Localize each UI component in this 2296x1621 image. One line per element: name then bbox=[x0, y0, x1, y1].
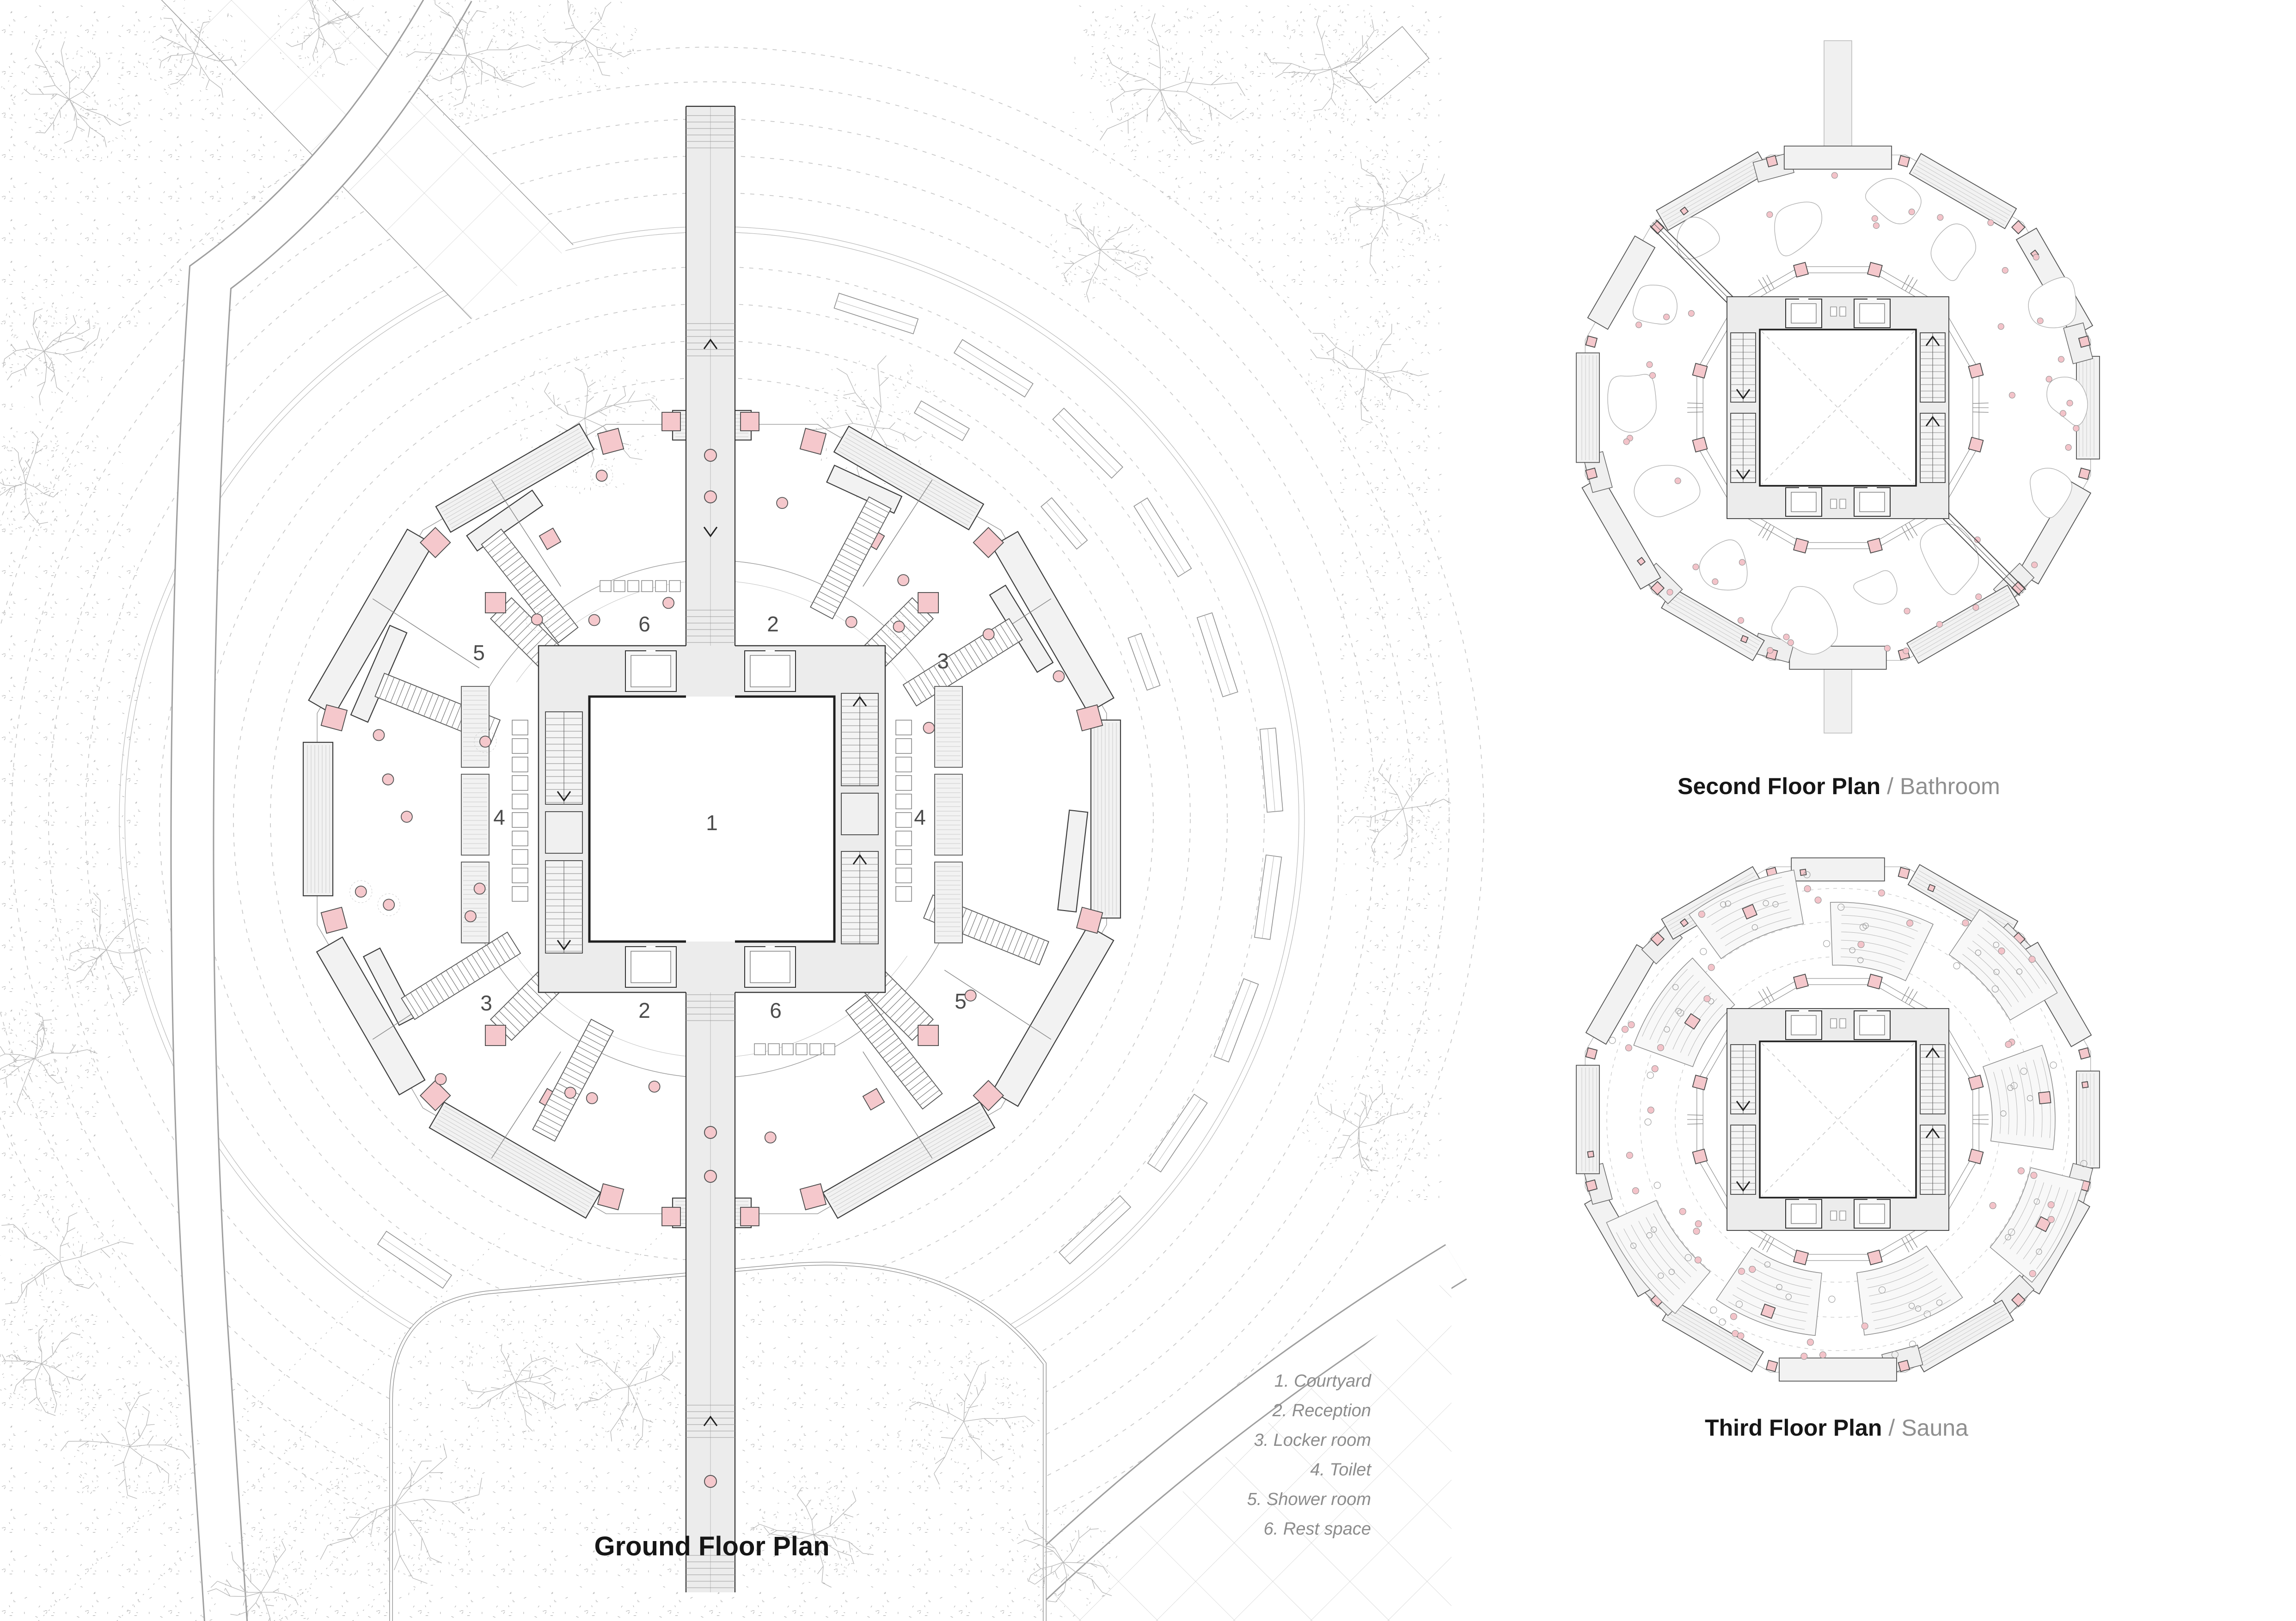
pool-dot bbox=[1667, 589, 1673, 595]
room-number: 3 bbox=[480, 991, 492, 1015]
pool-blob bbox=[1920, 524, 1978, 595]
pool-dot bbox=[1998, 324, 2004, 330]
room-legend: 1. Courtyard2. Reception3. Locker room4.… bbox=[1112, 1366, 1371, 1544]
pink-dot bbox=[1698, 911, 1705, 918]
pool-blob bbox=[1677, 217, 1720, 259]
ground-floor-title: Ground Floor Plan bbox=[594, 1531, 829, 1562]
plaza-bench bbox=[1041, 498, 1087, 549]
toilet-stall bbox=[896, 757, 912, 772]
pink-marker bbox=[1766, 1360, 1777, 1371]
elevator bbox=[625, 947, 676, 987]
toilet-stall bbox=[896, 720, 912, 735]
pink-marker bbox=[800, 1184, 826, 1210]
ring-gate bbox=[1687, 1115, 1703, 1115]
pink-dot bbox=[765, 1132, 776, 1143]
pink-marker bbox=[918, 593, 938, 613]
tree bbox=[1051, 202, 1153, 302]
room-block bbox=[429, 1102, 600, 1218]
seat-dot bbox=[1953, 963, 1960, 969]
room-number: 4 bbox=[914, 805, 926, 829]
pool-dot bbox=[1650, 373, 1656, 379]
elevator bbox=[1786, 299, 1822, 328]
ring-gate bbox=[1687, 403, 1703, 404]
locker-block bbox=[935, 686, 962, 767]
pink-dot bbox=[1695, 1221, 1702, 1227]
toilet-stall bbox=[896, 776, 912, 790]
pink-marker bbox=[918, 1025, 938, 1046]
room-number: 5 bbox=[955, 989, 967, 1013]
stair-flight bbox=[545, 712, 582, 804]
pink-marker bbox=[2082, 1082, 2088, 1088]
pink-dot bbox=[383, 774, 394, 785]
seat-dot bbox=[1647, 1072, 1653, 1078]
corridor-stub bbox=[1824, 668, 1852, 733]
pink-marker bbox=[1586, 1180, 1597, 1191]
seat-dot bbox=[1654, 1182, 1660, 1188]
pool-blob bbox=[1775, 202, 1822, 256]
plaza-bench bbox=[1197, 613, 1238, 697]
pink-dot bbox=[1962, 920, 1969, 926]
pool-dot bbox=[1788, 640, 1794, 646]
pink-marker bbox=[1766, 156, 1777, 167]
pink-marker bbox=[1867, 538, 1882, 553]
pool-blob bbox=[1633, 285, 1678, 324]
toilet-stall bbox=[896, 831, 912, 846]
pink-dot bbox=[1878, 890, 1885, 896]
plaza-bench bbox=[954, 340, 1033, 397]
ring-gate bbox=[1973, 1115, 1989, 1115]
wc-fixture bbox=[1831, 499, 1837, 508]
pool-dot bbox=[2037, 318, 2043, 324]
third-floor-title: Third Floor Plan/Sauna bbox=[1705, 1414, 1968, 1441]
toilet-stall bbox=[512, 813, 528, 827]
pink-marker bbox=[539, 528, 561, 550]
pink-marker bbox=[800, 428, 826, 454]
pink-dot bbox=[2005, 1041, 2012, 1048]
toilet-stall bbox=[512, 831, 528, 846]
pink-marker bbox=[741, 1207, 759, 1226]
pink-dot bbox=[1820, 1352, 1826, 1358]
stair-flight bbox=[841, 693, 878, 786]
pool-dot bbox=[1937, 214, 1943, 220]
ring-block bbox=[1910, 153, 2016, 228]
pink-marker bbox=[1867, 1250, 1882, 1265]
stair-flight bbox=[1731, 1125, 1756, 1194]
pink-dot bbox=[704, 449, 716, 461]
stair-flight bbox=[1920, 1045, 1945, 1114]
wc-fixture bbox=[1840, 307, 1846, 316]
counter-tile bbox=[642, 581, 653, 592]
toilet-stall bbox=[896, 887, 912, 901]
seat-dot bbox=[1829, 1296, 1835, 1303]
pink-dot bbox=[1807, 1339, 1814, 1346]
pink-dot bbox=[1626, 1152, 1633, 1159]
pool-dot bbox=[2009, 392, 2015, 398]
elevator bbox=[1786, 1199, 1822, 1228]
room-number: 4 bbox=[493, 805, 505, 829]
pool-blob bbox=[1608, 374, 1656, 432]
pink-marker bbox=[1794, 538, 1808, 553]
small-core bbox=[1727, 297, 1949, 519]
elevator bbox=[625, 651, 676, 691]
counter-tile bbox=[824, 1044, 835, 1055]
toilet-stall bbox=[896, 868, 912, 883]
legend-item: 6. Rest space bbox=[1112, 1514, 1371, 1544]
stair-flight bbox=[1920, 413, 1945, 483]
pink-marker bbox=[1586, 1048, 1597, 1059]
wc-fixture bbox=[1831, 1019, 1837, 1028]
pink-dot bbox=[1749, 1266, 1756, 1272]
pool-dot bbox=[1647, 361, 1653, 367]
elevator bbox=[1786, 488, 1822, 516]
pool-dot bbox=[1884, 645, 1890, 651]
room-number: 6 bbox=[638, 612, 650, 636]
counter-tile bbox=[810, 1044, 821, 1055]
pink-marker bbox=[1867, 263, 1882, 277]
pink-marker bbox=[1794, 1250, 1808, 1265]
pool-dot bbox=[2033, 254, 2039, 260]
stair-flight bbox=[1731, 333, 1756, 402]
second-floor-title-subtitle: Bathroom bbox=[1900, 773, 2000, 799]
pool-dot bbox=[2032, 562, 2038, 568]
pool-dot bbox=[1936, 621, 1942, 627]
pink-dot bbox=[2048, 1202, 2054, 1208]
pool-dot bbox=[1693, 564, 1699, 570]
elevator bbox=[745, 947, 796, 987]
pool-dot bbox=[1664, 314, 1670, 320]
pool-dot bbox=[2002, 267, 2008, 273]
pool-dot bbox=[1909, 209, 1915, 215]
wc-fixture bbox=[1840, 499, 1846, 508]
pool-dot bbox=[1904, 608, 1910, 614]
counter-tile bbox=[655, 581, 667, 592]
pink-dot bbox=[474, 883, 485, 894]
pink-dot bbox=[2029, 956, 2035, 962]
pool-dot bbox=[1623, 439, 1629, 445]
pool-dot bbox=[1636, 322, 1642, 328]
third-floor-title-separator: / bbox=[1888, 1415, 1895, 1441]
pink-marker bbox=[485, 1025, 506, 1046]
pool-dot bbox=[1973, 605, 1979, 611]
ring-block bbox=[1784, 146, 1892, 169]
ground-floor-title-text: Ground Floor Plan bbox=[594, 1531, 829, 1561]
pink-dot bbox=[1738, 1333, 1744, 1339]
pool-blob bbox=[1634, 465, 1700, 517]
pink-dot bbox=[777, 497, 788, 508]
pink-marker bbox=[1794, 263, 1808, 277]
seat-dot bbox=[1710, 1307, 1717, 1313]
locker-block bbox=[935, 774, 962, 855]
second-floor-title-separator: / bbox=[1887, 773, 1893, 799]
pink-marker bbox=[1898, 1360, 1910, 1371]
pink-dot bbox=[565, 1087, 576, 1098]
pink-dot bbox=[401, 811, 412, 822]
pink-dot bbox=[1693, 1228, 1700, 1235]
pool-dot bbox=[1712, 579, 1718, 585]
toilet-stall bbox=[896, 813, 912, 827]
pool-dot bbox=[2060, 410, 2066, 416]
pink-marker bbox=[1693, 1075, 1708, 1090]
pink-dot bbox=[1907, 920, 1913, 926]
ring-gate bbox=[1687, 1124, 1703, 1124]
elevator bbox=[1854, 1011, 1890, 1040]
counter-tile bbox=[768, 1044, 779, 1055]
toilet-stall bbox=[896, 794, 912, 809]
pink-dot bbox=[1739, 1268, 1745, 1275]
toilet-stall bbox=[896, 739, 912, 753]
elevator bbox=[1854, 1199, 1890, 1228]
pink-dot bbox=[983, 629, 994, 640]
elevator bbox=[1854, 488, 1890, 516]
pink-marker bbox=[662, 1207, 680, 1226]
pink-dot bbox=[355, 886, 367, 897]
seat-dot bbox=[2050, 1062, 2057, 1068]
counter-tile bbox=[669, 581, 680, 592]
toilet-stall bbox=[512, 757, 528, 772]
pink-dot bbox=[2031, 1172, 2037, 1179]
toilet-stall bbox=[512, 887, 528, 901]
pink-dot bbox=[1704, 996, 1710, 1002]
toilet-stall bbox=[512, 850, 528, 864]
presentation-sheet: 16253443265 Ground Floor Plan Second Flo… bbox=[0, 0, 2296, 1621]
pool-dot bbox=[1976, 594, 1982, 600]
pool-dot bbox=[1767, 648, 1773, 654]
pink-dot bbox=[924, 722, 935, 734]
pool-dot bbox=[1767, 212, 1773, 218]
pool-dot bbox=[1872, 215, 1878, 221]
pink-dot bbox=[1695, 1257, 1702, 1263]
pink-marker bbox=[1586, 468, 1597, 479]
pink-marker bbox=[485, 593, 506, 613]
legend-item: 2. Reception bbox=[1112, 1396, 1371, 1425]
pink-dot bbox=[1861, 1323, 1868, 1329]
plaza-bench bbox=[914, 401, 969, 440]
pink-dot bbox=[1652, 1065, 1658, 1072]
pink-dot bbox=[2029, 1270, 2036, 1277]
pink-marker bbox=[1587, 1151, 1594, 1157]
plaza-bench bbox=[1148, 1094, 1207, 1172]
pool-dot bbox=[1738, 618, 1744, 624]
pink-dot bbox=[1658, 1045, 1664, 1051]
plaza-bench bbox=[1059, 1196, 1131, 1264]
stair-flight bbox=[1920, 1125, 1945, 1194]
stair-flight bbox=[545, 861, 582, 953]
pink-dot bbox=[704, 491, 716, 503]
pink-marker bbox=[1586, 336, 1597, 347]
pool-dot bbox=[1831, 172, 1837, 178]
pool-blob bbox=[1854, 571, 1897, 605]
pink-marker bbox=[741, 412, 759, 431]
sauna-bench bbox=[1831, 902, 1933, 981]
plaza-bench bbox=[1134, 498, 1191, 577]
counter-tile bbox=[754, 1044, 765, 1055]
ring-block bbox=[1907, 585, 2019, 663]
pink-marker bbox=[598, 1184, 624, 1210]
pink-dot bbox=[1053, 671, 1065, 682]
room-number: 2 bbox=[638, 998, 650, 1022]
pink-dot bbox=[383, 899, 394, 910]
room-block bbox=[823, 1102, 995, 1218]
legend-item: 4. Toilet bbox=[1112, 1455, 1371, 1485]
locker-block bbox=[461, 862, 489, 943]
pink-marker bbox=[321, 907, 347, 933]
pink-marker bbox=[1898, 868, 1910, 879]
pink-marker bbox=[1969, 1075, 1984, 1090]
room-number: 6 bbox=[770, 998, 782, 1022]
pink-marker bbox=[1867, 974, 1882, 989]
tree bbox=[537, 0, 637, 92]
room-block bbox=[303, 742, 333, 896]
second-floor-title-text: Second Floor Plan bbox=[1678, 773, 1880, 799]
pink-dot bbox=[1998, 948, 2005, 954]
pink-dot bbox=[1628, 1022, 1635, 1028]
pink-marker bbox=[1693, 363, 1708, 378]
ring-gate bbox=[1687, 412, 1703, 412]
counter-tile bbox=[600, 581, 611, 592]
seat-dot bbox=[1645, 1119, 1651, 1125]
plaza-bench bbox=[1053, 408, 1123, 478]
pink-marker bbox=[1794, 974, 1808, 989]
small-core bbox=[1727, 1009, 1949, 1230]
wc-fixture bbox=[1831, 1211, 1837, 1220]
pink-dot bbox=[2018, 1168, 2024, 1174]
pink-dot bbox=[596, 470, 607, 481]
pink-dot bbox=[1815, 897, 1821, 903]
wc-fixture bbox=[1831, 307, 1837, 316]
counter-tile bbox=[796, 1044, 807, 1055]
pink-dot bbox=[435, 1074, 447, 1085]
pool-dot bbox=[2065, 445, 2071, 451]
pink-dot bbox=[1731, 1313, 1737, 1320]
plan2-layer bbox=[1576, 41, 2100, 733]
wc-fixture bbox=[1840, 1019, 1846, 1028]
elevator bbox=[1854, 299, 1890, 328]
pink-marker bbox=[2079, 336, 2090, 347]
legend-item: 3. Locker room bbox=[1112, 1425, 1371, 1455]
elevator bbox=[1786, 1011, 1822, 1040]
pool-dot bbox=[2067, 400, 2073, 406]
plaza-bench bbox=[834, 293, 918, 334]
stair-run bbox=[401, 932, 520, 1020]
counter-tile bbox=[782, 1044, 793, 1055]
stair-flight bbox=[1731, 413, 1756, 483]
pink-dot bbox=[587, 1093, 598, 1104]
toilet-stall bbox=[512, 776, 528, 790]
pink-dot bbox=[1622, 1026, 1629, 1033]
stair-flight bbox=[1920, 333, 1945, 402]
pink-marker bbox=[1898, 156, 1910, 167]
pink-dot bbox=[480, 736, 491, 747]
pink-dot bbox=[894, 621, 905, 632]
pink-dot bbox=[1708, 964, 1714, 971]
pool-blob bbox=[1931, 224, 1976, 281]
legend-item: 5. Shower room bbox=[1112, 1485, 1371, 1514]
pink-marker bbox=[1800, 869, 1806, 875]
elevator bbox=[745, 651, 796, 691]
room-number: 2 bbox=[767, 612, 779, 636]
stair-flight bbox=[841, 851, 878, 944]
pink-marker bbox=[2039, 1092, 2051, 1104]
stair-flight bbox=[1731, 1045, 1756, 1114]
pink-marker bbox=[2079, 468, 2090, 479]
pink-dot bbox=[1990, 1202, 1996, 1209]
pink-dot bbox=[373, 729, 385, 740]
pink-dot bbox=[1632, 1187, 1639, 1194]
pink-marker bbox=[2079, 1048, 2090, 1059]
pool-dot bbox=[1903, 648, 1909, 654]
pool-blob bbox=[2028, 277, 2076, 328]
room-block bbox=[1091, 720, 1120, 918]
pink-dot bbox=[532, 614, 543, 625]
pink-marker bbox=[1969, 1149, 1984, 1164]
ring-block bbox=[1656, 152, 1769, 231]
pink-marker bbox=[1969, 437, 1984, 452]
toilet-stall bbox=[896, 850, 912, 864]
room-block bbox=[1058, 810, 1088, 912]
seat-dot bbox=[1719, 1319, 1726, 1325]
pink-dot bbox=[704, 1170, 716, 1182]
pool-dot bbox=[2046, 376, 2052, 382]
second-floor-title: Second Floor Plan/Bathroom bbox=[1678, 773, 2000, 800]
pink-dot bbox=[846, 617, 857, 628]
pool-dot bbox=[2058, 356, 2064, 362]
ring-gate bbox=[1973, 403, 1989, 404]
third-floor-title-text: Third Floor Plan bbox=[1705, 1415, 1882, 1441]
plaza-bench bbox=[1128, 633, 1160, 690]
corridor-stub bbox=[1824, 41, 1852, 152]
pink-dot bbox=[663, 597, 674, 608]
toilet-stall bbox=[512, 794, 528, 809]
counter-tile bbox=[628, 581, 639, 592]
toilet-stall bbox=[512, 739, 528, 753]
ring-block bbox=[1576, 1065, 1599, 1174]
room-number: 5 bbox=[473, 641, 485, 665]
pool-dot bbox=[1739, 559, 1745, 565]
pink-marker bbox=[598, 428, 624, 454]
pink-marker bbox=[662, 412, 680, 431]
pink-dot bbox=[589, 615, 600, 626]
plan3-layer bbox=[1576, 858, 2100, 1381]
toilet-stall bbox=[512, 720, 528, 735]
ring-gate bbox=[1973, 412, 1989, 412]
toilet-stall bbox=[512, 868, 528, 883]
pool-dot bbox=[1688, 311, 1694, 317]
pink-dot bbox=[898, 575, 909, 586]
pink-marker bbox=[863, 1089, 884, 1110]
locker-block bbox=[461, 686, 489, 767]
pink-marker bbox=[1969, 363, 1984, 378]
pool-dot bbox=[1988, 220, 1994, 226]
seat-dot bbox=[1824, 941, 1830, 947]
pink-marker bbox=[1693, 437, 1708, 452]
plaza-bench bbox=[1260, 728, 1283, 812]
pool-dot bbox=[2073, 425, 2079, 431]
pink-dot bbox=[2048, 1216, 2054, 1223]
ring-gate bbox=[1973, 1124, 1989, 1124]
wc-fixture bbox=[1840, 1211, 1846, 1220]
pink-dot bbox=[649, 1081, 660, 1092]
room-number: 3 bbox=[937, 649, 949, 673]
sauna-bench bbox=[1634, 958, 1734, 1067]
pink-dot bbox=[1801, 1353, 1807, 1359]
pool-blob bbox=[1699, 540, 1747, 590]
grass-area bbox=[0, 398, 153, 1276]
seat-dot bbox=[1609, 1037, 1616, 1044]
seat-dot bbox=[1700, 948, 1707, 955]
ring-block bbox=[1576, 353, 1599, 462]
locker-block bbox=[461, 774, 489, 855]
pool-dot bbox=[1874, 223, 1880, 229]
